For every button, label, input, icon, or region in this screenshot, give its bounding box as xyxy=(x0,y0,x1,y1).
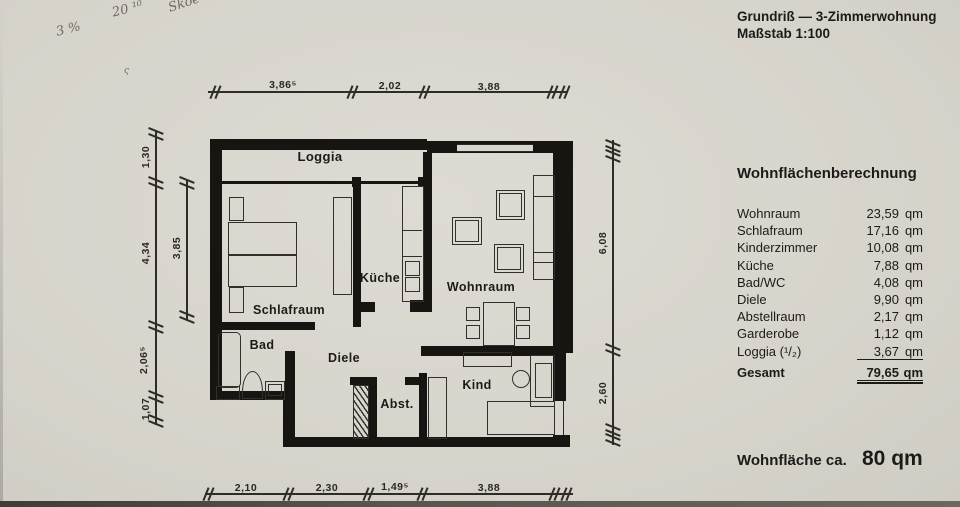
dim-label: 1,07 xyxy=(140,387,152,431)
dim-label: 6,08 xyxy=(597,221,609,265)
dimension-line-right xyxy=(612,140,614,445)
furniture-armchair xyxy=(452,217,482,245)
kitchen-counter-divider xyxy=(402,256,422,257)
room-label-kueche: Küche xyxy=(355,271,405,285)
dimension-line-left-inner xyxy=(186,180,188,320)
kitchen-hob xyxy=(405,277,420,292)
dim-tick xyxy=(560,487,572,501)
wall xyxy=(423,152,432,312)
furniture-chair xyxy=(516,307,530,321)
wall xyxy=(553,141,573,353)
dim-label: 2,10 xyxy=(216,482,276,494)
dim-label: 2,02 xyxy=(360,80,420,92)
washer xyxy=(216,386,240,400)
dim-tick xyxy=(548,487,560,501)
room-label-loggia: Loggia xyxy=(285,149,355,164)
furniture-chair xyxy=(466,325,480,339)
dim-label: 4,34 xyxy=(140,231,152,275)
wall-unit-divider xyxy=(533,252,553,253)
dim-tick xyxy=(605,150,621,162)
furniture-nightstand xyxy=(229,197,244,221)
toilet xyxy=(242,371,263,399)
furniture-desk-panel xyxy=(535,363,552,398)
dim-label: 3,86⁵ xyxy=(253,79,313,91)
dim-label: 1,30 xyxy=(140,135,152,179)
room-label-kind: Kind xyxy=(452,378,502,392)
photo-edge-left xyxy=(0,0,3,507)
room-label-schlafraum: Schlafraum xyxy=(249,303,329,317)
scanned-floor-plan-photo: 20 ¹⁰ Skoe 3 % ς Grundriß — 3-Zimmerwohn… xyxy=(0,0,960,507)
furniture-chair xyxy=(466,307,480,321)
dim-tick xyxy=(148,321,164,333)
kitchen-hob xyxy=(405,261,420,276)
dim-label: 2,60 xyxy=(597,371,609,415)
furniture-nightstand xyxy=(229,287,244,313)
dim-tick xyxy=(179,311,195,323)
room-label-diele: Diele xyxy=(319,351,369,365)
dim-label: 3,85 xyxy=(171,226,183,270)
dimension-line-left xyxy=(155,130,157,425)
furniture-wardrobe xyxy=(428,377,447,439)
furniture-shelf xyxy=(463,352,512,367)
dim-tick xyxy=(202,487,214,501)
dim-tick xyxy=(346,85,358,99)
wall-unit-divider xyxy=(533,196,553,197)
wall xyxy=(210,322,315,330)
window xyxy=(554,401,564,435)
wall xyxy=(210,139,222,330)
furniture-wardrobe xyxy=(333,197,352,295)
dim-tick xyxy=(179,177,195,189)
dim-label: 1,49⁵ xyxy=(365,481,425,493)
room-label-abstellraum: Abst. xyxy=(372,397,422,411)
wall-unit-divider xyxy=(533,262,553,263)
dim-label: 3,88 xyxy=(459,81,519,93)
sink-basin xyxy=(268,384,282,396)
furniture-chair xyxy=(516,325,530,339)
room-label-bad: Bad xyxy=(242,338,282,352)
wall xyxy=(283,437,570,447)
furniture-dining-table xyxy=(483,302,515,346)
dim-tick xyxy=(546,85,558,99)
furniture-bed xyxy=(487,401,555,435)
dim-label: 2,06⁵ xyxy=(138,338,150,382)
wall xyxy=(350,377,377,385)
furniture-bed xyxy=(228,222,297,256)
furniture-armchair xyxy=(496,190,525,220)
garderobe-symbol xyxy=(353,385,369,439)
loggia-window-line xyxy=(222,181,425,184)
wall xyxy=(405,377,427,385)
furniture-table xyxy=(494,244,524,273)
wall xyxy=(355,302,375,312)
dim-label: 3,88 xyxy=(459,482,519,494)
dim-tick xyxy=(558,85,570,99)
furniture-desk-chair xyxy=(512,370,530,388)
dim-tick xyxy=(605,434,621,446)
bathtub xyxy=(218,332,241,388)
floor-plan: Loggia Schlafraum Küche Wohnraum Bad Die… xyxy=(0,0,960,507)
dim-tick xyxy=(605,344,621,356)
furniture-bed xyxy=(228,254,297,287)
furniture-wall-unit xyxy=(533,175,555,280)
window xyxy=(457,144,533,152)
room-label-wohnraum: Wohnraum xyxy=(441,280,521,294)
wall xyxy=(553,435,570,447)
dim-tick xyxy=(209,85,221,99)
dim-label: 2,30 xyxy=(297,482,357,494)
wall xyxy=(285,351,295,398)
dim-tick xyxy=(282,487,294,501)
photo-edge-bottom xyxy=(0,501,960,507)
kitchen-counter-divider xyxy=(402,230,422,231)
